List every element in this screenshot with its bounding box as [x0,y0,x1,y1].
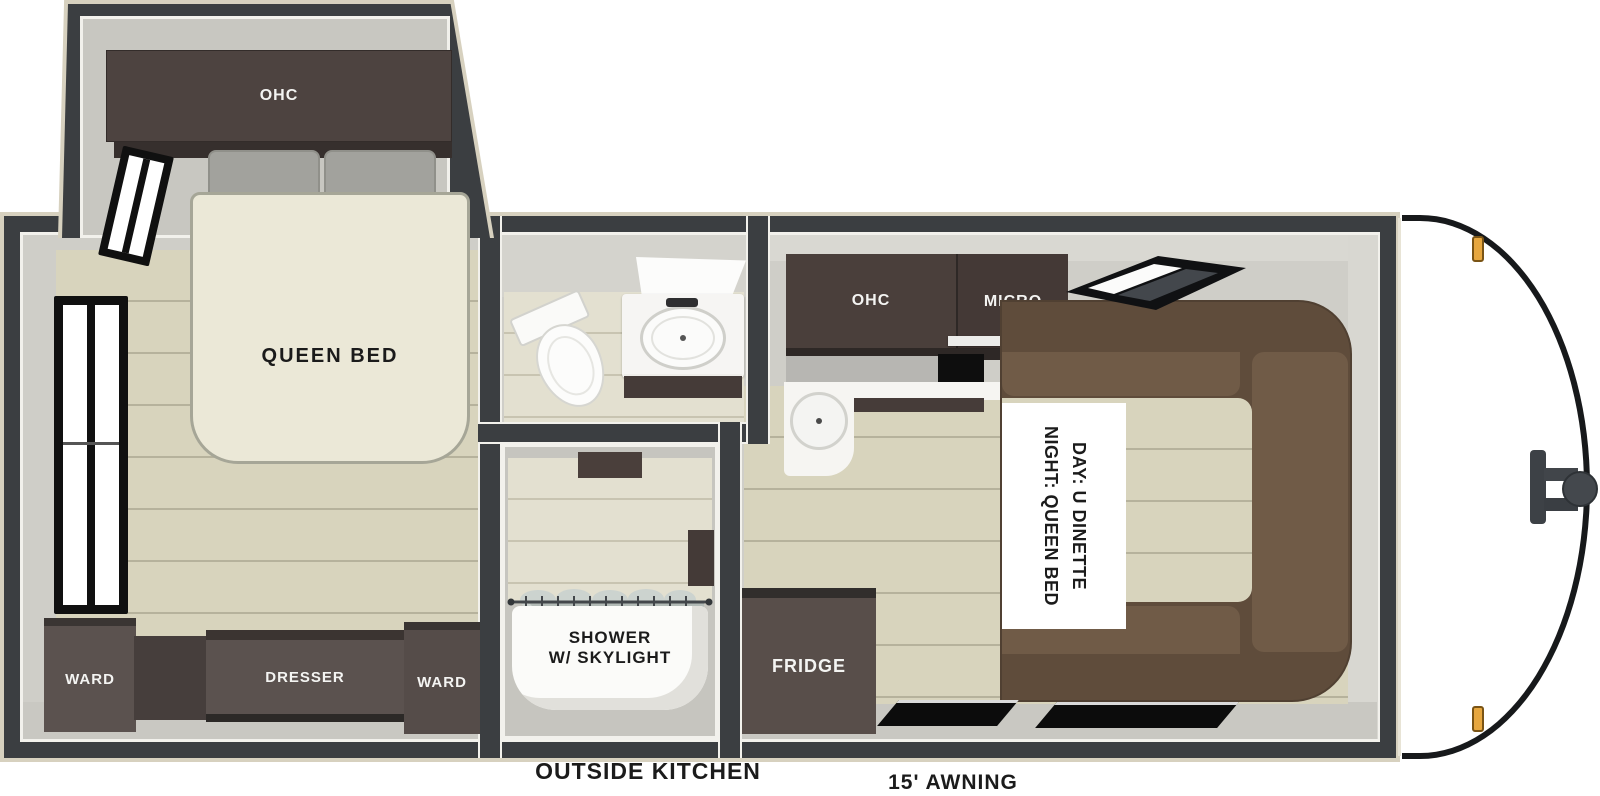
ohc-cabinet-kitchen: OHC [786,254,958,348]
dresser: DRESSER [206,630,404,714]
marker-light-top [1472,236,1484,262]
shower-label-line1: SHOWER [569,628,652,648]
bathroom-vanity-base [624,374,742,398]
bedroom-left-window [54,296,128,614]
bottom-window-1 [877,700,1019,726]
wardrobe-corner [134,636,210,720]
kitchen-base-cabinet [854,398,984,412]
dresser-label: DRESSER [206,640,404,714]
kitchen-sink [790,392,848,450]
shower-shelf-top [578,452,642,478]
shower-label-line2: W/ SKYLIGHT [549,648,671,668]
awning-label: 15' AWNING [830,770,1076,796]
wall-shower-kitchen [718,422,742,758]
ohc-cabinet-bedroom: OHC [106,50,452,142]
shower-pan: SHOWER W/ SKYLIGHT [512,606,708,710]
rv-floorplan-canvas: { "floorplan": { "bedroom": { "ohc": "OH… [0,0,1600,796]
dinette-seat-top [1002,352,1240,396]
bathroom-faucet [666,298,698,307]
bathroom-sink [640,306,726,370]
wardrobe-right: WARD [404,622,480,734]
dresser-base-shadow [206,714,406,722]
front-wall-face [1348,235,1378,739]
wardrobe-left: WARD [44,618,136,732]
ohc-bedroom-label: OHC [107,51,451,141]
hitch-jack [1516,438,1600,548]
sink-drain [680,335,686,341]
ohc-kitchen-label: OHC [786,254,956,348]
outside-kitchen-label: OUTSIDE KITCHEN [498,756,798,786]
dinette-label-line2: NIGHT: QUEEN BED [1036,426,1064,606]
dinette-label-line1: DAY: U DINETTE [1064,442,1092,590]
fridge-label: FRIDGE [742,598,876,734]
dinette-table-label: DAY: U DINETTE NIGHT: QUEEN BED [1002,403,1126,629]
skylight-vent [1050,248,1255,318]
ward-left-label: WARD [44,626,136,732]
bottom-window-2 [1035,702,1239,728]
wall-bath-kitchen [746,216,770,444]
dinette-seat-right [1252,352,1348,652]
front-cap-seam [1398,218,1401,756]
kitchen-sink-drain [816,418,822,424]
fridge: FRIDGE [742,588,876,734]
marker-light-bottom [1472,706,1484,732]
queen-bed: QUEEN BED [190,192,470,464]
wall-bedroom-bath [478,216,502,758]
queen-bed-label: QUEEN BED [193,345,467,368]
ward-right-label: WARD [404,630,480,734]
